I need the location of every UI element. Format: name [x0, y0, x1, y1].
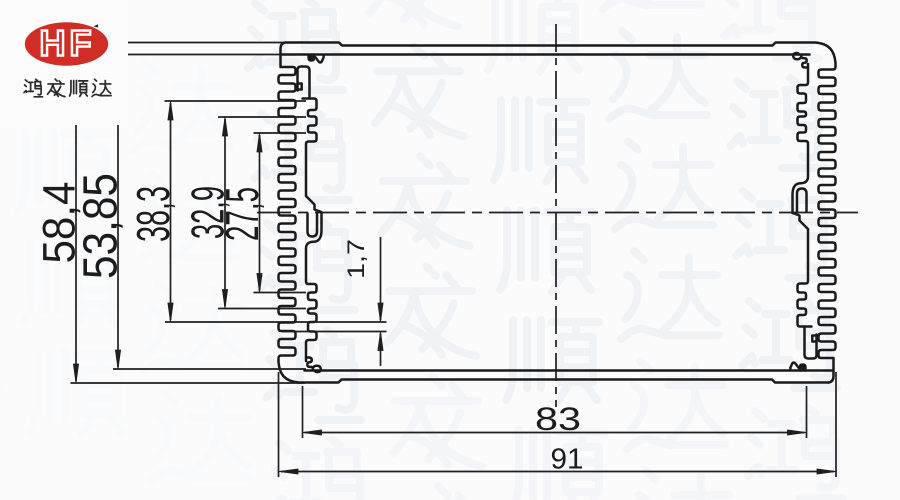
svg-text:27,5: 27,5 [216, 187, 268, 241]
svg-text:38,3: 38,3 [127, 186, 179, 242]
svg-text:53,85: 53,85 [75, 173, 128, 279]
svg-text:HF: HF [40, 23, 96, 64]
svg-text:91: 91 [551, 444, 584, 476]
svg-text:1,7: 1,7 [343, 239, 370, 279]
svg-text:83: 83 [535, 401, 581, 437]
